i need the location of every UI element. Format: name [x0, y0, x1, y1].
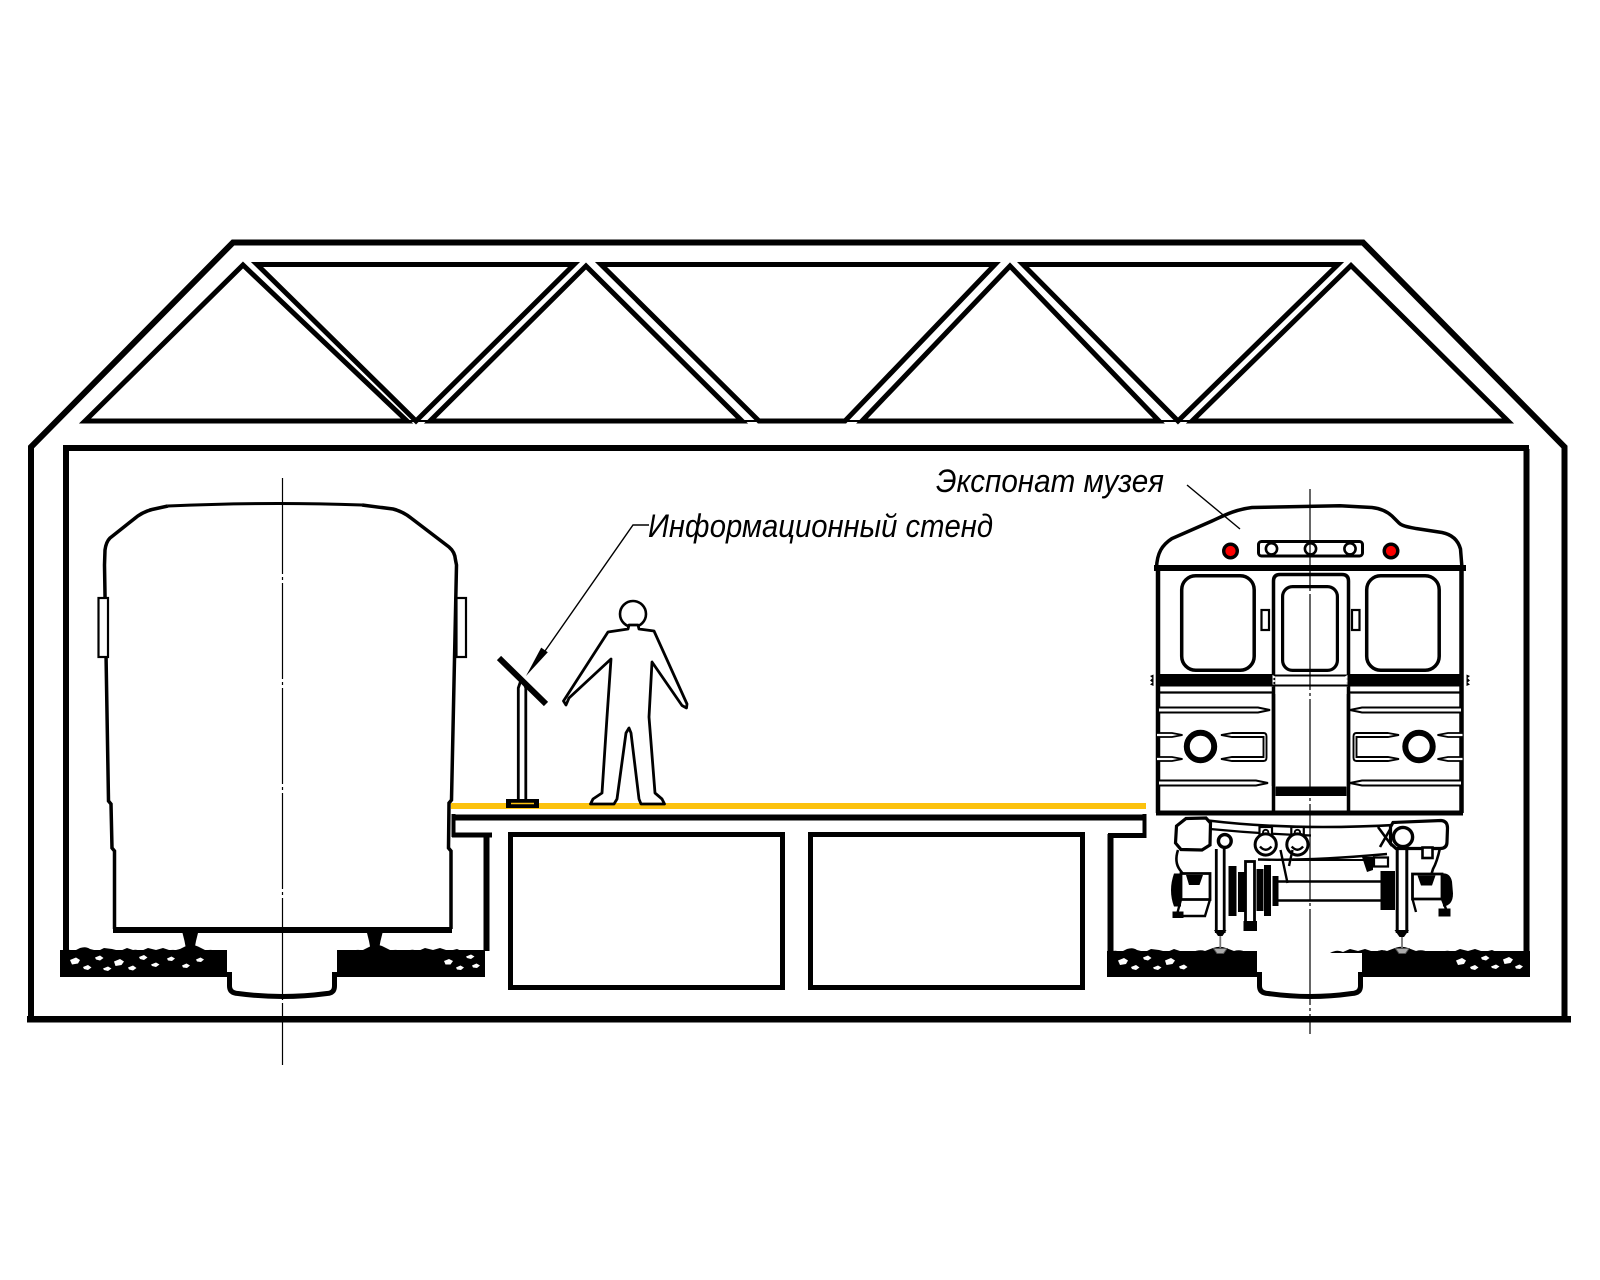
svg-text:Экспонат музея: Экспонат музея — [936, 463, 1164, 499]
svg-text:Информационный стенд: Информационный стенд — [648, 508, 993, 544]
